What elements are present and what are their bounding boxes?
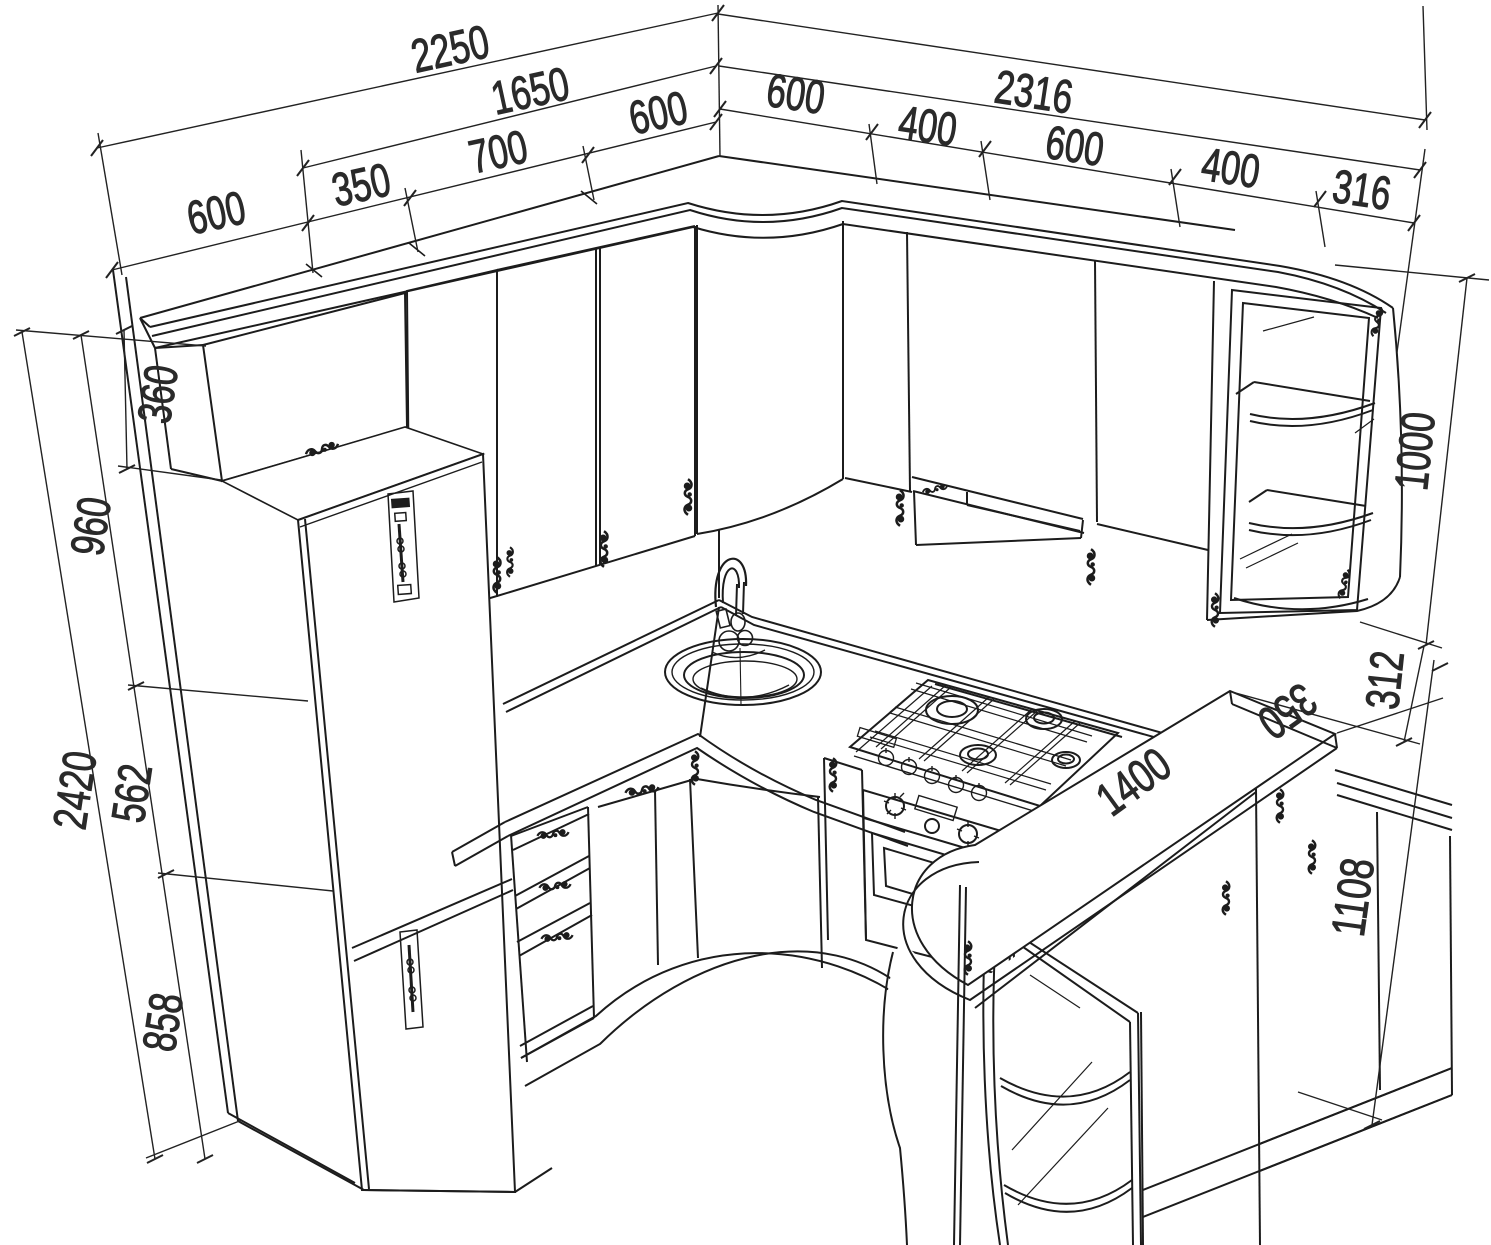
- svg-text:400: 400: [895, 95, 960, 156]
- svg-text:400: 400: [1198, 137, 1263, 198]
- svg-text:312: 312: [1355, 648, 1414, 711]
- svg-text:960: 960: [60, 493, 121, 558]
- svg-text:600: 600: [763, 63, 828, 124]
- svg-text:858: 858: [132, 989, 193, 1054]
- svg-text:1108: 1108: [1321, 855, 1384, 940]
- svg-text:1000: 1000: [1384, 409, 1445, 492]
- svg-text:360: 360: [127, 361, 188, 426]
- svg-text:562: 562: [101, 760, 162, 825]
- svg-text:316: 316: [1329, 159, 1394, 220]
- svg-text:600: 600: [1042, 115, 1107, 176]
